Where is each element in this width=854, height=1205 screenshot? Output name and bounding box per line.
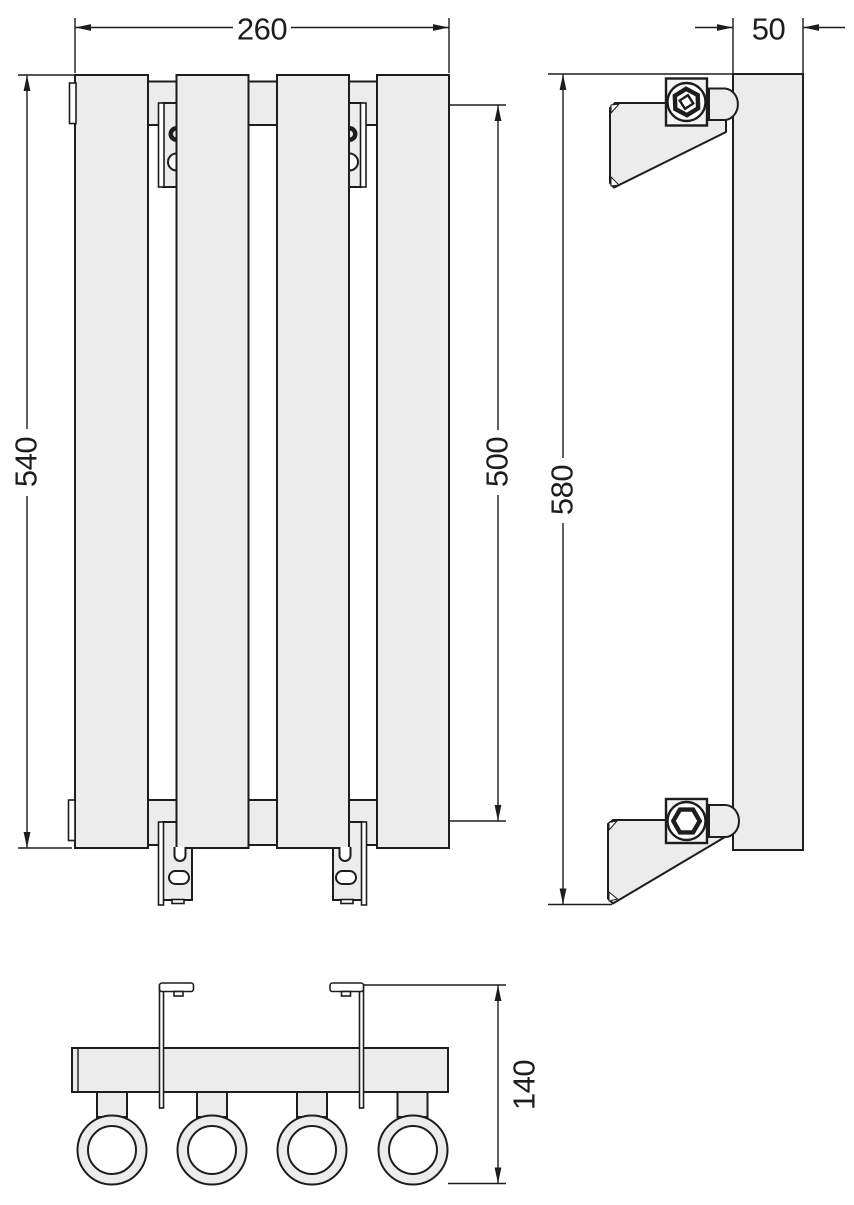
bottom-collector-segment — [249, 800, 278, 845]
panel-section-4 — [377, 75, 449, 848]
tube-neck — [398, 1092, 428, 1117]
hook-nub — [174, 992, 183, 997]
top-collector-segment — [249, 82, 278, 126]
tube-neck — [97, 1092, 127, 1117]
tube-ring-inner — [88, 1126, 136, 1174]
bracket-strip — [159, 103, 165, 187]
dim-front-height: 540 — [9, 75, 75, 848]
bracket-plate — [163, 103, 177, 187]
hook-foot — [160, 983, 194, 992]
top-collector-end-tab — [70, 83, 77, 124]
bracket-slot — [336, 871, 356, 884]
panel-section-3 — [277, 75, 349, 848]
dim-depth: 50 — [695, 12, 845, 74]
tube-neck — [297, 1092, 327, 1117]
drawing-canvas: 260 540 500 50 580 140 — [0, 0, 854, 1200]
front-view — [69, 75, 450, 905]
lower-bracket-details — [169, 847, 356, 904]
bracket-slot — [169, 871, 189, 884]
dim-label-50: 50 — [752, 12, 786, 47]
panel-section-1 — [75, 75, 148, 848]
dim-label-260: 260 — [237, 12, 287, 47]
dim-label-540: 540 — [9, 437, 44, 487]
tube-ring-inner — [188, 1126, 236, 1174]
bracket-notch — [340, 847, 351, 861]
bottom-view — [72, 983, 448, 1185]
tube-ring-inner — [389, 1126, 437, 1174]
bracket-plate — [349, 103, 361, 187]
tube-neck — [197, 1092, 227, 1117]
side-view — [608, 74, 803, 904]
dim-side-height: 580 — [545, 74, 733, 905]
panel-section-2 — [177, 75, 249, 848]
top-spigot — [709, 89, 738, 121]
bottom-valve-hex-nut — [673, 810, 699, 833]
bracket-notch — [175, 847, 186, 861]
side-panel-profile — [733, 74, 803, 850]
hook-nub — [342, 992, 351, 997]
dim-label-500: 500 — [480, 437, 515, 487]
bottom-collector-end-tab — [69, 800, 76, 841]
plan-collector-bar — [72, 1048, 448, 1092]
dim-connection-spacing: 500 — [449, 105, 515, 821]
radiator-drawing: 260 540 500 50 580 140 — [0, 0, 854, 1200]
plan-tube-necks — [97, 1092, 428, 1117]
dim-label-580: 580 — [545, 465, 580, 515]
dim-front-width: 260 — [75, 12, 449, 74]
bracket-strip — [362, 822, 367, 905]
hook-foot — [330, 983, 364, 992]
bottom-spigot — [709, 805, 739, 837]
bracket-foot-nub — [341, 900, 353, 904]
panel-sections — [75, 75, 449, 848]
plan-tube-rings — [78, 1116, 448, 1185]
tube-ring-inner — [288, 1126, 336, 1174]
dim-label-140: 140 — [507, 1060, 542, 1110]
bracket-strip — [159, 822, 164, 905]
hook-stem — [160, 985, 164, 1108]
bracket-foot-nub — [172, 900, 184, 904]
bracket-strip — [361, 103, 367, 187]
hook-stem — [360, 985, 364, 1108]
